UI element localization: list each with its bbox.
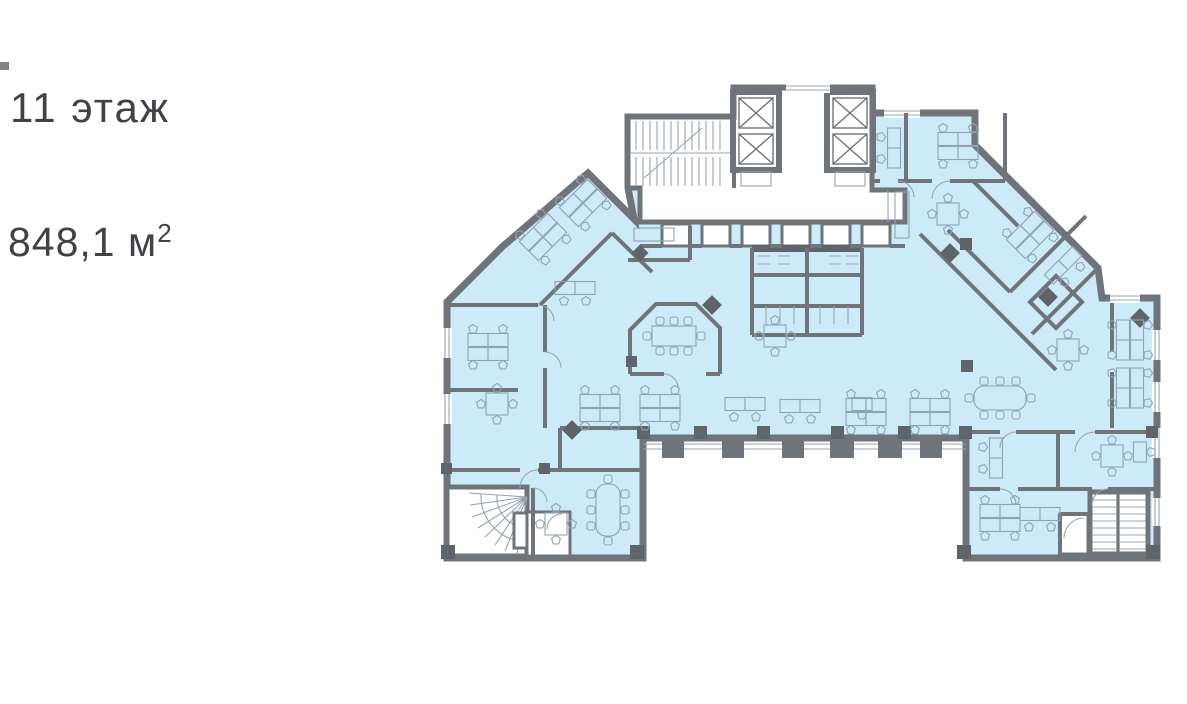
floor-plan-page: 11 этаж 848,1 м2 bbox=[0, 0, 1187, 704]
floor-plan-drawing bbox=[0, 0, 1187, 704]
elevator-core bbox=[628, 88, 905, 246]
